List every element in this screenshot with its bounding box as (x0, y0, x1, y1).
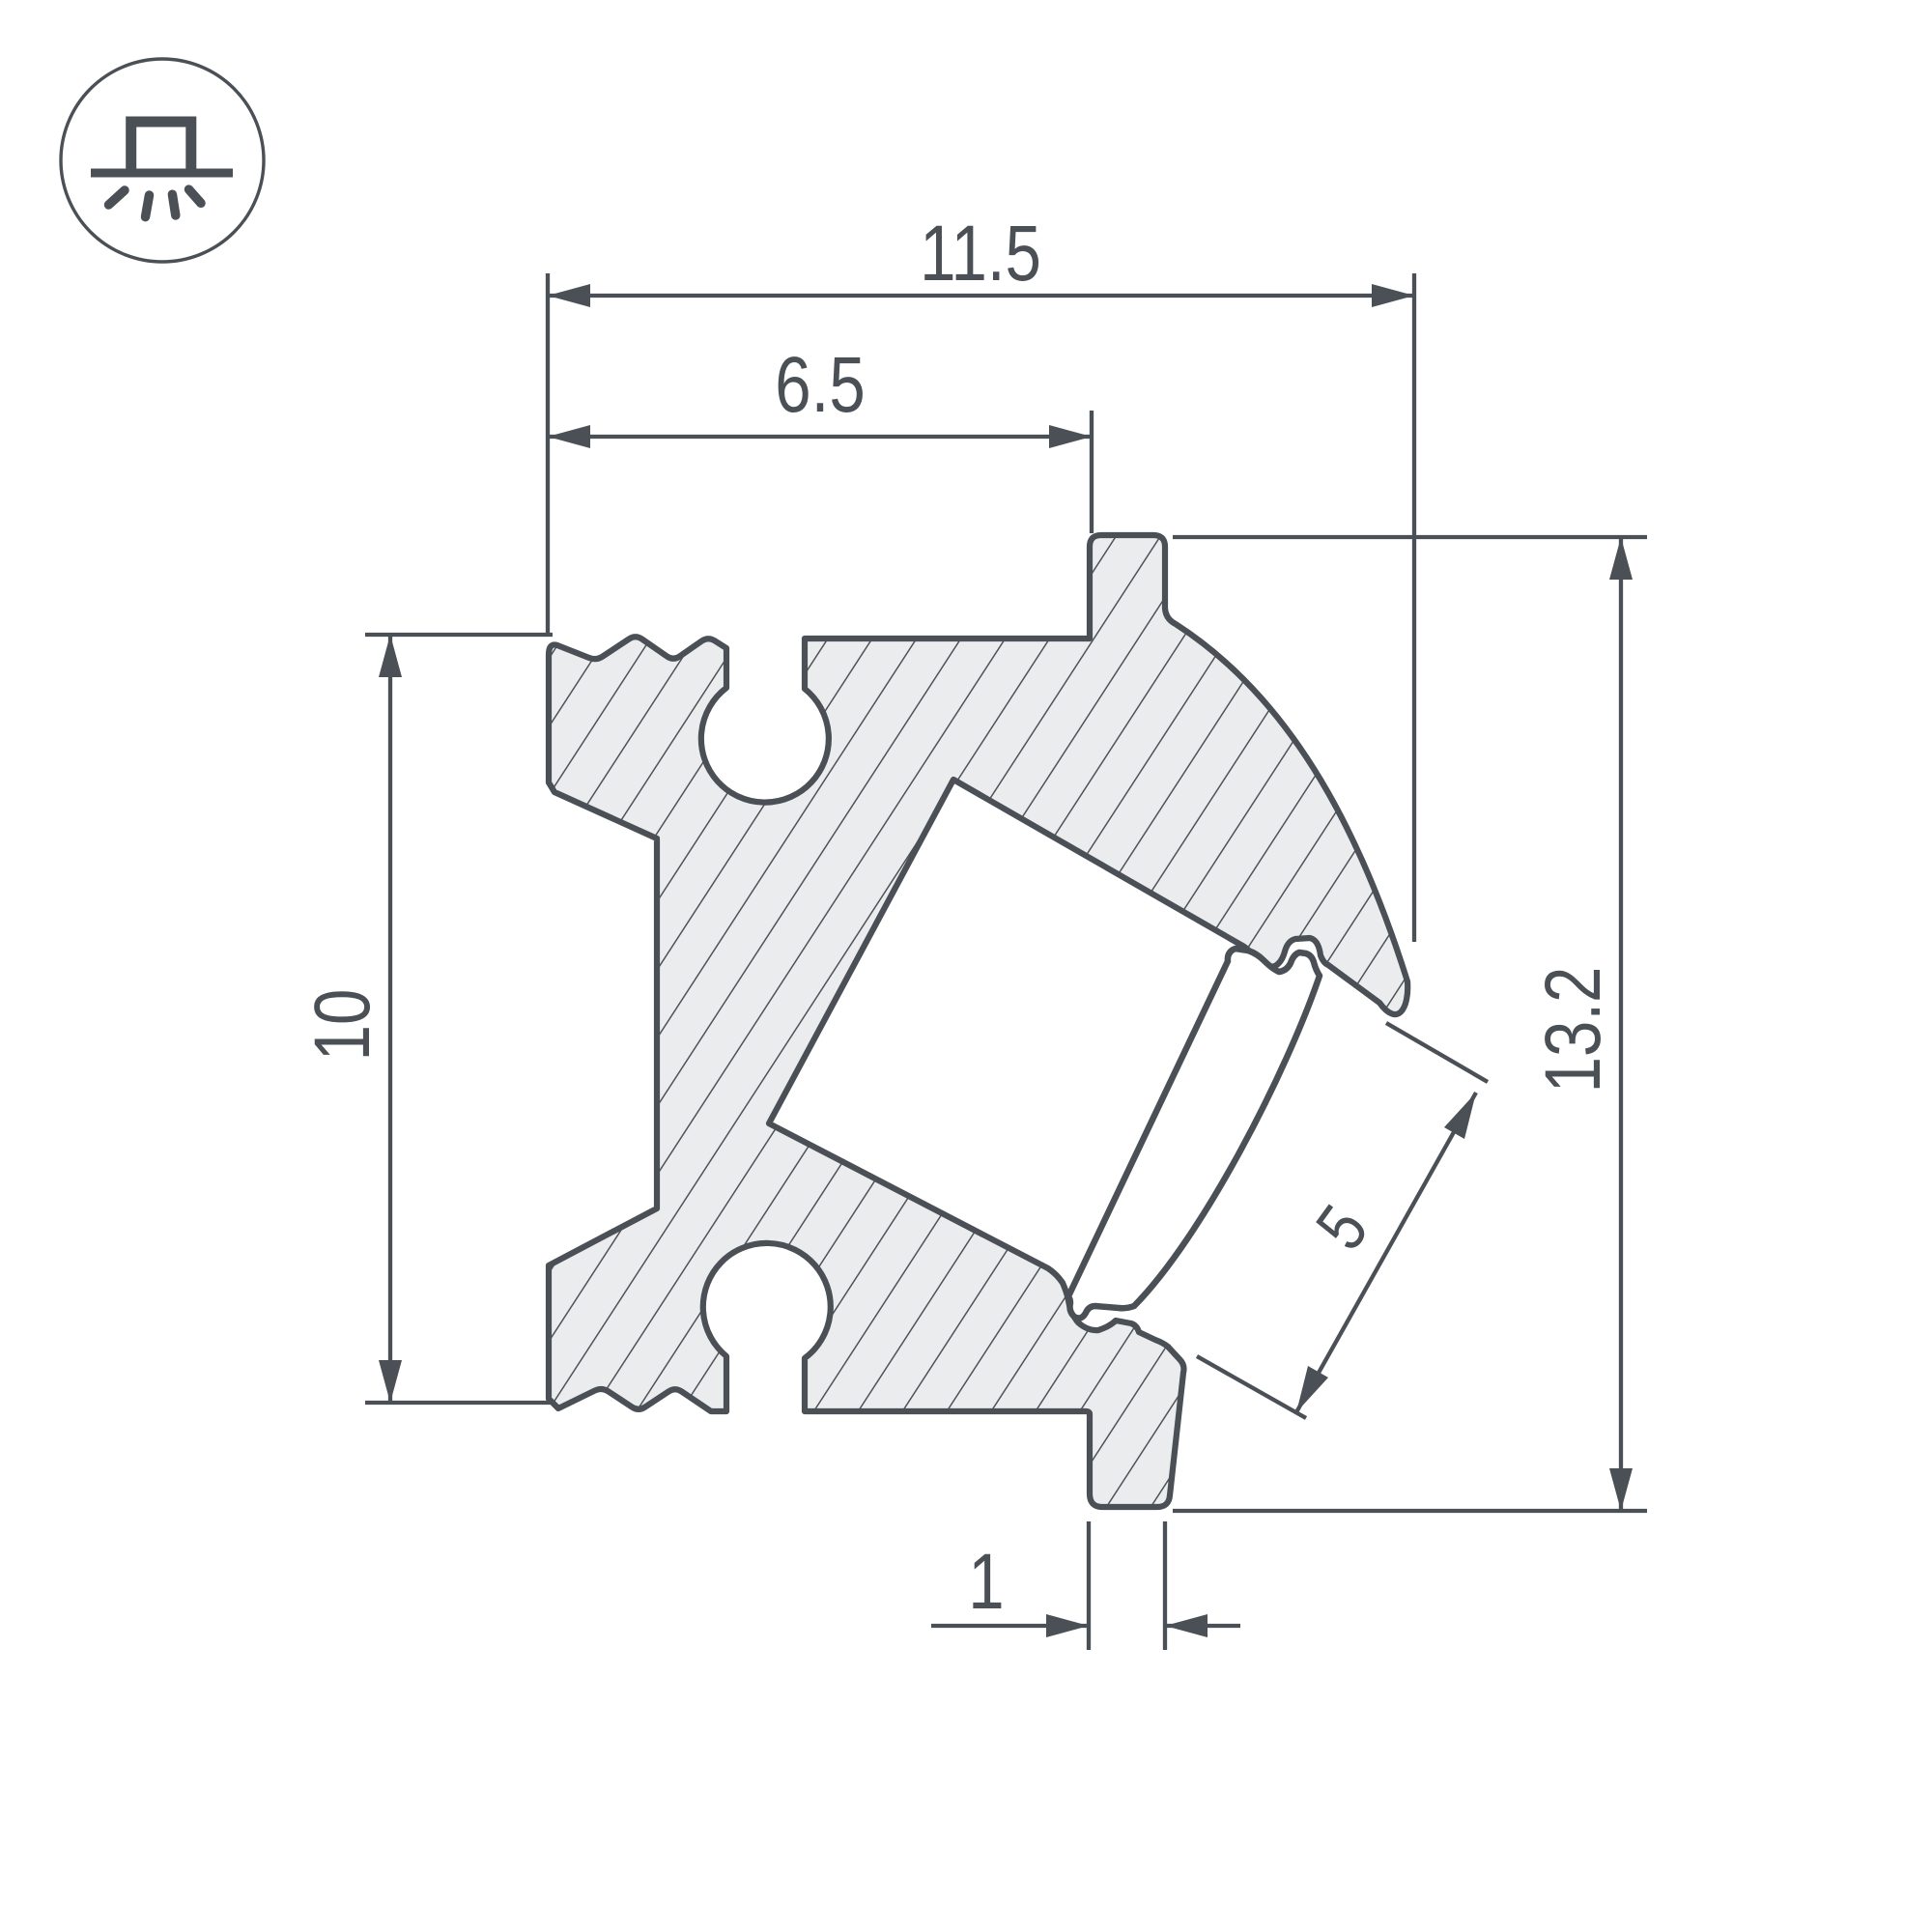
svg-text:11.5: 11.5 (920, 209, 1041, 298)
svg-text:6.5: 6.5 (775, 340, 865, 429)
svg-text:13.2: 13.2 (1528, 967, 1617, 1094)
svg-text:1: 1 (968, 1537, 1004, 1626)
svg-text:10: 10 (298, 989, 386, 1062)
